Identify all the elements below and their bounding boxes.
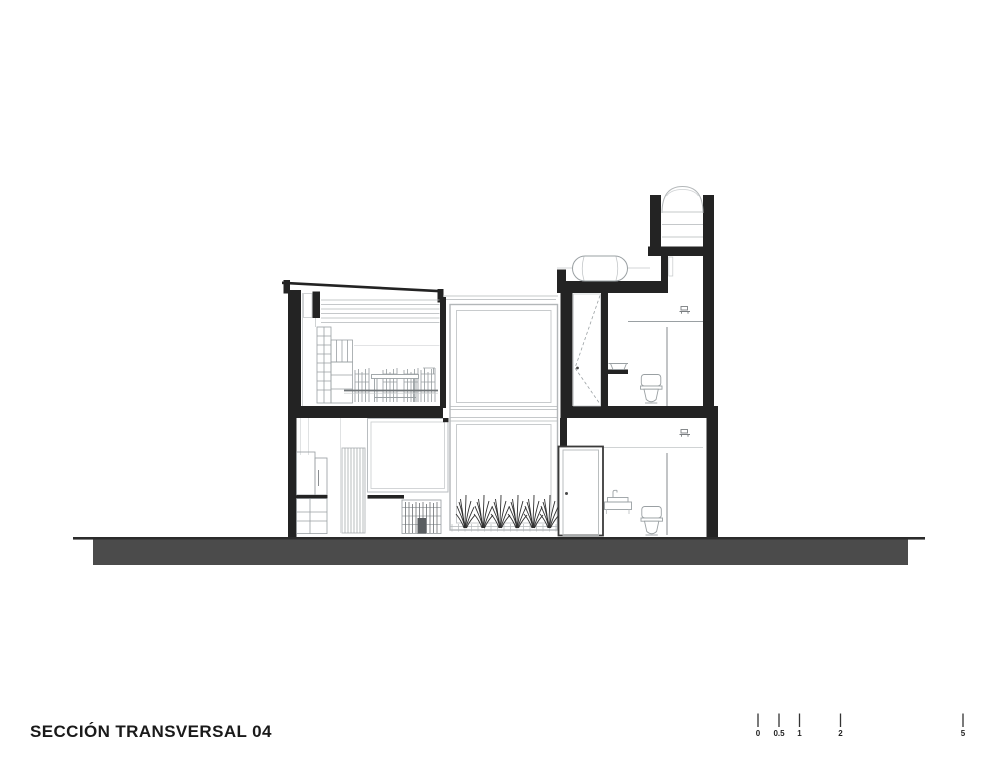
right-wall-lower xyxy=(707,406,719,537)
sink-basin xyxy=(608,498,629,503)
chair-high-back xyxy=(423,368,435,374)
boiler xyxy=(557,256,650,281)
right-block xyxy=(557,187,718,538)
scale-label: 0.5 xyxy=(773,729,785,738)
ground xyxy=(73,537,925,565)
sink-counter xyxy=(605,502,632,510)
dining-table xyxy=(372,375,419,403)
central-wall xyxy=(561,293,573,409)
tank-shelf-lines xyxy=(662,212,703,237)
upper-living-room xyxy=(303,292,440,407)
door-head-wall xyxy=(560,418,567,447)
tower-door-jamb xyxy=(669,257,673,276)
sink-basin xyxy=(609,364,629,370)
shelving-unit xyxy=(317,327,331,403)
upper-left-wall xyxy=(288,290,301,408)
faucet xyxy=(613,490,617,497)
refrigerator-cabinet xyxy=(297,452,328,495)
right-wall-upper xyxy=(703,195,714,407)
vanity-counter xyxy=(601,370,628,375)
window-sill xyxy=(368,495,405,499)
roof-slab xyxy=(557,281,668,293)
bottle-rack xyxy=(402,500,441,534)
ceiling-louvers xyxy=(321,300,440,323)
scale-bar: 0 0.5 1 2 5 xyxy=(756,714,966,739)
chair xyxy=(383,368,397,402)
counter-section xyxy=(297,495,328,499)
sink-bracket xyxy=(607,510,630,515)
slat-screen xyxy=(342,448,365,533)
clerestory-window xyxy=(304,294,313,318)
door-handle xyxy=(565,492,568,495)
toilet xyxy=(641,507,663,536)
chair xyxy=(421,368,435,402)
drawing-title: SECCIÓN TRANSVERSAL 04 xyxy=(30,722,272,741)
tank-dome xyxy=(662,187,703,214)
wall-edge-lines xyxy=(301,418,341,533)
scale-label: 0 xyxy=(756,729,761,738)
partition-wall xyxy=(601,293,608,407)
floor-slab xyxy=(561,406,718,418)
sheet: SECCIÓN TRANSVERSAL 04 0 0.5 1 2 5 xyxy=(0,0,1000,767)
tower-floor-slab xyxy=(648,247,714,257)
boiler-body xyxy=(573,256,628,281)
closet-door xyxy=(574,294,601,406)
roof-beam-section xyxy=(313,292,321,319)
ground-fill xyxy=(93,540,908,566)
courtyard xyxy=(443,296,559,532)
glazing-mid-rail xyxy=(450,407,558,422)
wall-sink xyxy=(605,490,632,514)
tower-left-wall xyxy=(650,195,661,247)
title-block: SECCIÓN TRANSVERSAL 04 xyxy=(30,722,272,741)
ceiling-lamp xyxy=(680,307,691,314)
upper-right-wall xyxy=(440,297,446,408)
door-handle xyxy=(576,367,579,370)
section-door xyxy=(559,447,604,536)
ceiling-lamp xyxy=(680,430,691,437)
roof-parapet xyxy=(557,270,566,283)
roof-slab xyxy=(282,282,443,293)
mid-floor-slab xyxy=(288,406,443,418)
ground-bathroom xyxy=(559,418,704,536)
toilet xyxy=(641,375,663,404)
scale-label: 1 xyxy=(797,729,802,738)
kitchen-window xyxy=(368,418,449,492)
glazing-upper-pane xyxy=(457,311,552,403)
tower-connector-wall xyxy=(661,256,668,282)
ground-left-wall xyxy=(288,418,297,537)
scale-label: 2 xyxy=(838,729,843,738)
left-block xyxy=(282,280,449,537)
base-cabinet xyxy=(297,499,328,534)
scale-label: 5 xyxy=(961,729,966,738)
upper-bathroom xyxy=(574,293,704,407)
chair xyxy=(355,368,369,402)
scale-ticks xyxy=(758,714,963,728)
window-head-mark xyxy=(443,418,449,422)
ground-line xyxy=(73,537,925,540)
roof-edge-lines xyxy=(443,296,558,300)
ground-kitchen xyxy=(297,418,449,534)
